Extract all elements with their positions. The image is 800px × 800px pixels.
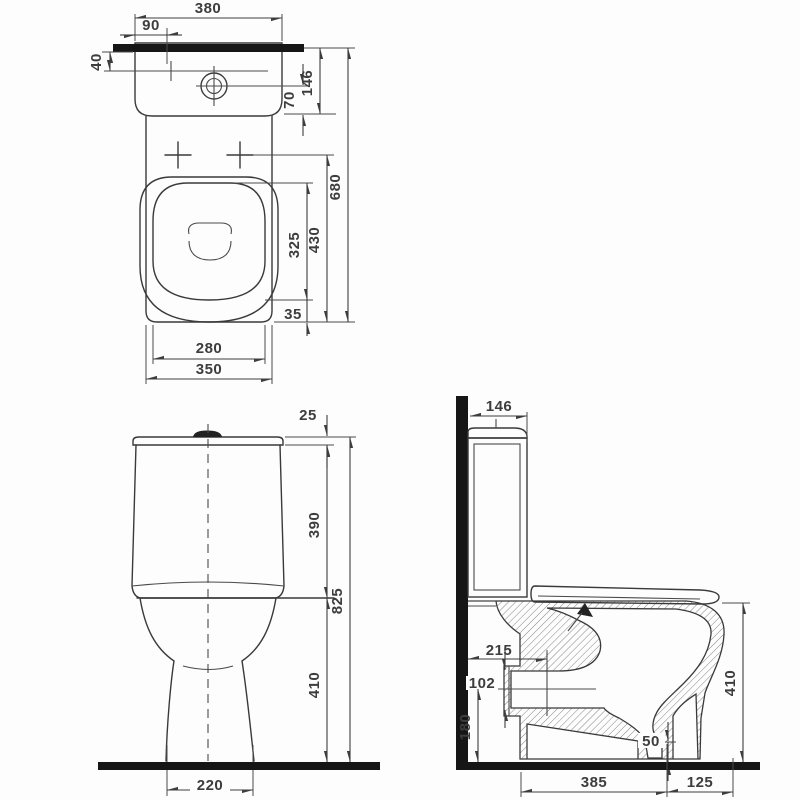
dim-side-front-overhang-label: 125 [687, 774, 714, 791]
dim-front-total-height-label: 825 [329, 588, 346, 615]
dim-front-lid-height: 25 [285, 407, 356, 468]
plan-seat-opening [153, 183, 265, 300]
dim-plan-hole-offset: 90 [120, 17, 182, 64]
front-view: 25 390 825 410 220 [98, 407, 380, 796]
dim-front-base-width-line: 220 [167, 777, 253, 794]
dim-plan-front-rim-label: 35 [284, 306, 302, 323]
dim-plan-opening-width: 280 [153, 325, 265, 364]
dim-plan-hole-offset-label: 90 [142, 17, 160, 34]
plan-trap-detail-bottom [189, 241, 231, 260]
front-bowl-left [140, 598, 174, 761]
dim-side-bowl-height-label: 410 [722, 670, 739, 697]
side-tank-lid [468, 428, 527, 438]
plan-tank-outline [135, 43, 282, 116]
dim-side-tank-depth: 146 [470, 398, 527, 442]
dim-side-bowl-height: 410 [722, 603, 750, 762]
dim-side-outlet-axis-height-label: 180 [457, 714, 474, 741]
toilet-dimension-drawing: 380 90 40 70 146 [0, 0, 800, 800]
plan-fixing-cross-right [227, 142, 253, 168]
side-seat-joint-line [538, 596, 700, 599]
dim-plan-tank-depth: 146 [299, 48, 336, 114]
dim-plan-opening-length-label: 325 [286, 232, 303, 259]
dim-side-tank-depth-label: 146 [486, 398, 513, 415]
dim-side-outlet-length-label: 215 [486, 642, 513, 659]
side-view: 146 215 102 180 50 [456, 396, 760, 797]
plan-body-outline [146, 116, 272, 322]
plan-wall-bar [113, 44, 304, 52]
side-tank-inner [474, 444, 520, 590]
dim-plan-wall-to-hole-label: 40 [88, 53, 105, 71]
dim-front-bowl-height: 410 [306, 598, 327, 762]
front-floor-bar [98, 762, 380, 770]
dim-plan-bowl-width-label: 350 [196, 361, 223, 378]
dim-plan-tank-width-label: 380 [195, 0, 222, 17]
technical-drawing-canvas: 380 90 40 70 146 [0, 0, 800, 800]
dim-plan-opening-length: 325 [234, 183, 313, 300]
dim-plan-opening-width-label: 280 [196, 340, 223, 357]
side-floor-bar [460, 762, 760, 770]
side-bowl-section [468, 601, 724, 759]
plan-trap-detail-top [189, 223, 232, 234]
plan-view: 380 90 40 70 146 [88, 0, 355, 384]
dim-front-tank-height-label: 390 [306, 512, 323, 539]
dim-front-total-height: 825 [329, 437, 350, 762]
dim-side-outlet-lip-label: 50 [642, 733, 660, 750]
dim-plan-seat-length-label: 430 [306, 227, 323, 254]
dim-side-outlet-bore-label: 102 [469, 675, 496, 692]
dim-plan-front-rim: 35 [284, 300, 307, 336]
dim-front-bowl-height-label: 410 [306, 672, 323, 699]
front-bowl-right [242, 598, 276, 761]
dim-front-tank-height: 390 [306, 445, 327, 598]
dim-plan-tank-depth-label: 146 [299, 70, 316, 97]
dim-front-base-width-label: 220 [197, 777, 224, 794]
plan-fixing-cross-left [165, 142, 191, 168]
dim-plan-wall-to-hole: 40 [88, 52, 133, 71]
dim-side-floor-depth-label: 385 [581, 774, 608, 791]
dim-plan-total-depth-label: 680 [327, 174, 344, 201]
side-tank-outer [468, 438, 527, 597]
dim-front-lid-height-label: 25 [299, 407, 317, 424]
dim-plan-button-to-front-label: 70 [281, 91, 298, 109]
